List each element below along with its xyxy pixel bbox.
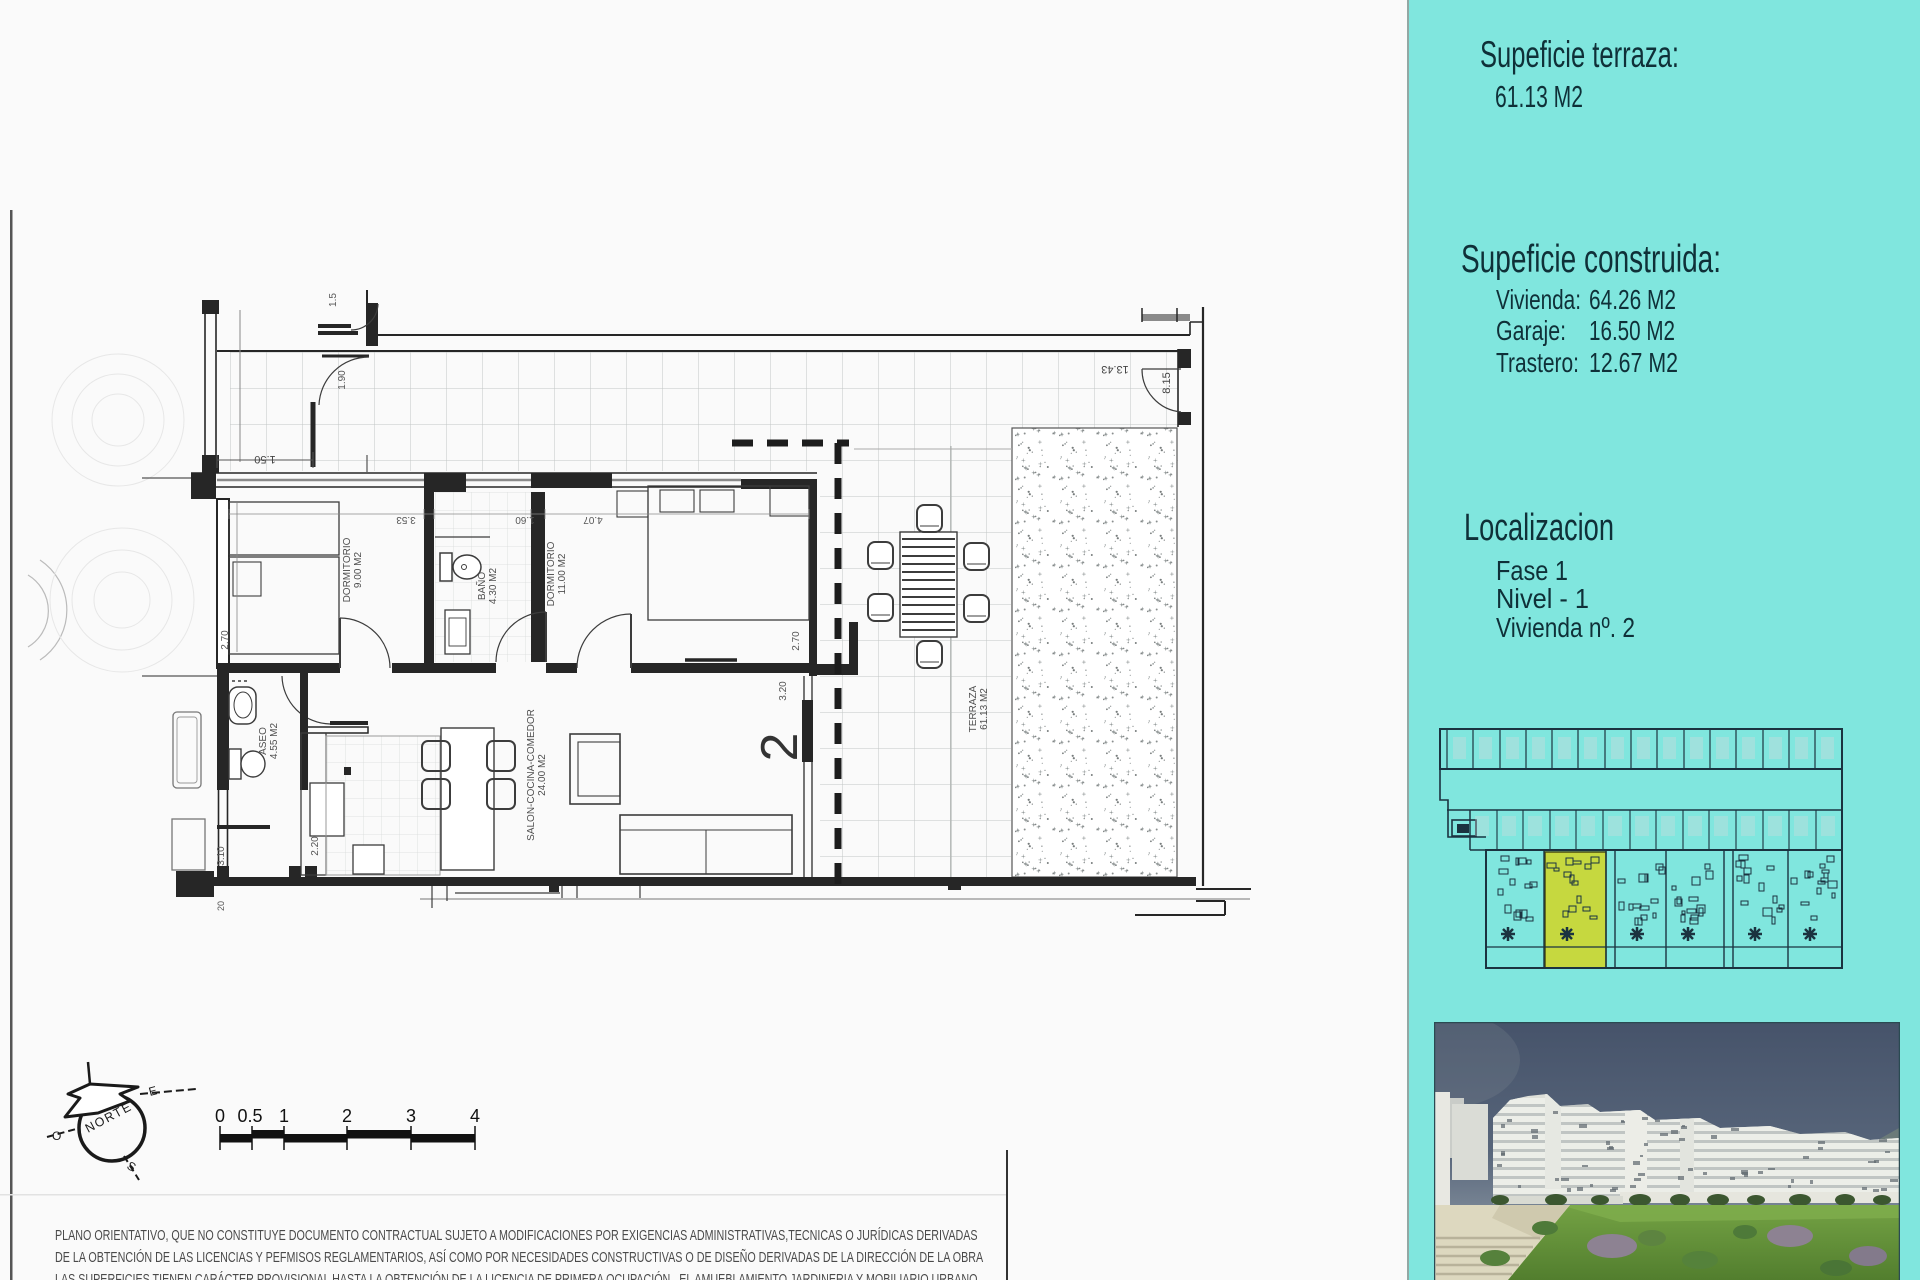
svg-text:DORMITORIO: DORMITORIO (546, 541, 557, 606)
svg-text:LAS SUPERFICIES TIENEN CARÁCTE: LAS SUPERFICIES TIENEN CARÁCTER PROVISIO… (55, 1270, 978, 1280)
svg-text:Garaje:: Garaje: (1496, 315, 1566, 346)
svg-text:61.13 M2: 61.13 M2 (1495, 79, 1583, 114)
svg-text:24.00 M2: 24.00 M2 (537, 754, 548, 796)
svg-text:DE LA OBTENCIÓN DE LAS LICENCI: DE LA OBTENCIÓN DE LAS LICENCIAS Y PEFMI… (55, 1248, 984, 1265)
svg-text:2.70: 2.70 (220, 630, 231, 650)
svg-text:TERRAZA: TERRAZA (968, 685, 979, 732)
svg-text:2: 2 (751, 733, 809, 762)
svg-text:1.5: 1.5 (328, 293, 339, 307)
svg-text:Nivel - 1: Nivel - 1 (1496, 583, 1589, 614)
svg-text:BAÑO: BAÑO (475, 572, 488, 601)
svg-text:PLANO ORIENTATIVO, QUE NO CONS: PLANO ORIENTATIVO, QUE NO CONSTITUYE DOC… (55, 1226, 978, 1243)
svg-text:3.20: 3.20 (778, 681, 789, 701)
svg-text:1.90: 1.90 (337, 370, 348, 390)
svg-text:3: 3 (406, 1106, 416, 1126)
svg-text:2: 2 (342, 1106, 352, 1126)
svg-text:Localizacion: Localizacion (1464, 507, 1614, 549)
svg-text:SALON-COCINA-COMEDOR: SALON-COCINA-COMEDOR (526, 709, 537, 841)
svg-text:Vivienda nº. 2: Vivienda nº. 2 (1496, 612, 1635, 643)
svg-text:2.70: 2.70 (791, 631, 802, 651)
svg-text:2.20: 2.20 (310, 836, 321, 856)
svg-text:12.67 M2: 12.67 M2 (1589, 347, 1678, 378)
svg-text:1: 1 (279, 1106, 289, 1126)
svg-text:O: O (52, 1129, 61, 1143)
svg-text:ASEO: ASEO (258, 727, 269, 755)
svg-text:Fase 1: Fase 1 (1496, 555, 1568, 586)
svg-text:4.55 M2: 4.55 M2 (269, 722, 280, 759)
svg-text:Supeficie construida:: Supeficie construida: (1461, 238, 1721, 281)
svg-text:Vivienda:: Vivienda: (1496, 284, 1581, 315)
svg-text:11.00 M2: 11.00 M2 (557, 553, 568, 594)
svg-text:0: 0 (215, 1106, 225, 1126)
svg-text:Supeficie terraza:: Supeficie terraza: (1480, 34, 1679, 75)
svg-text:4.30 M2: 4.30 M2 (488, 567, 499, 604)
svg-text:4.07: 4.07 (583, 514, 603, 525)
svg-text:DORMITORIO: DORMITORIO (342, 537, 353, 602)
svg-text:Trastero:: Trastero: (1496, 347, 1579, 378)
svg-text:64.26 M2: 64.26 M2 (1589, 284, 1676, 315)
svg-text:9.00 M2: 9.00 M2 (353, 551, 364, 588)
svg-text:1.50: 1.50 (254, 453, 275, 465)
svg-text:61.13 M2: 61.13 M2 (979, 688, 990, 730)
svg-text:0.5: 0.5 (237, 1106, 262, 1126)
svg-text:8.15: 8.15 (1161, 372, 1173, 393)
svg-text:3.53: 3.53 (396, 514, 416, 525)
svg-text:4: 4 (470, 1106, 480, 1126)
svg-text:16.50 M2: 16.50 M2 (1589, 315, 1675, 346)
svg-text:20: 20 (216, 901, 226, 911)
svg-text:3.10: 3.10 (216, 846, 227, 866)
svg-text:1.60: 1.60 (515, 514, 535, 525)
svg-text:13.43: 13.43 (1101, 363, 1129, 375)
